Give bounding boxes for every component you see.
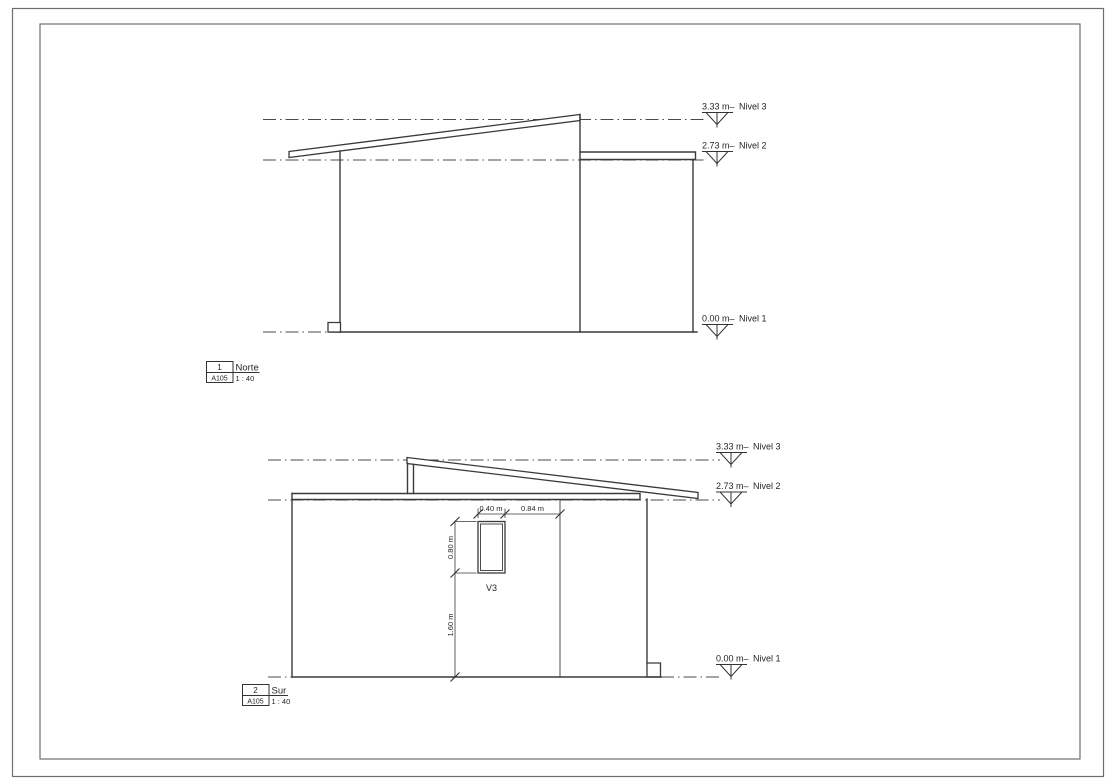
level-elevation-label: 0.00 m– [716, 654, 749, 664]
level-name-label: Nivel 3 [739, 102, 767, 112]
norte-view-title: 1 A105 Norte 1 : 40 [207, 362, 260, 384]
view-scale: 1 : 40 [272, 697, 291, 706]
level-head-icon [720, 492, 742, 507]
norte-level1-marker: 0.00 m– Nivel 1 [702, 314, 767, 340]
sur-view-title: 2 A105 Sur 1 : 40 [243, 685, 291, 707]
norte-flat-roof [580, 152, 696, 160]
window-v3-tag: V3 [486, 583, 497, 593]
sur-level1-marker: 0.00 m– Nivel 1 [716, 654, 781, 680]
sur-clerestory-post [408, 464, 414, 494]
dim-window-height: 0.80 m [446, 536, 455, 559]
sur-sloped-roof-beam [407, 458, 698, 499]
dim-window-sill: 1.60 m [446, 614, 455, 637]
level-head-icon [720, 453, 742, 468]
level-head-icon [720, 665, 742, 680]
norte-footing [328, 323, 341, 333]
level-name-label: Nivel 1 [739, 314, 767, 324]
level-name-label: Nivel 2 [739, 141, 767, 151]
view-number: 1 [217, 363, 222, 372]
view-sheet-ref: A105 [247, 699, 263, 706]
sur-footing [647, 663, 661, 677]
dimension-lines [455, 509, 560, 678]
view-name: Norte [236, 363, 259, 374]
level-name-label: Nivel 3 [753, 442, 781, 452]
norte-sloped-roof-beam [289, 115, 580, 158]
level-elevation-label: 0.00 m– [702, 314, 735, 324]
sur-level3-marker: 3.33 m– Nivel 3 [716, 442, 781, 468]
level-head-icon [706, 152, 728, 167]
view-sheet-ref: A105 [211, 376, 227, 383]
elevation-sheet-drawing: 3.33 m– Nivel 3 2.73 m– Nivel 2 0.00 m– … [0, 0, 1112, 784]
level-head-icon [706, 113, 728, 128]
view-sur: V3 0.40 m 0.84 m 0.80 m 1.60 m 3.33 m– N… [243, 442, 781, 707]
sur-level2-marker: 2.73 m– Nivel 2 [716, 481, 781, 507]
view-number: 2 [253, 686, 258, 695]
norte-level2-marker: 2.73 m– Nivel 2 [702, 141, 767, 167]
dimension-tick-icons [451, 510, 565, 682]
level-name-label: Nivel 2 [753, 481, 781, 491]
view-name: Sur [272, 686, 287, 697]
level-elevation-label: 2.73 m– [702, 141, 735, 151]
view-norte: 3.33 m– Nivel 3 2.73 m– Nivel 2 0.00 m– … [207, 102, 767, 384]
level-elevation-label: 3.33 m– [716, 442, 749, 452]
level-head-icon [706, 325, 728, 340]
norte-level3-marker: 3.33 m– Nivel 3 [702, 102, 767, 128]
window-v3-frame [478, 522, 505, 574]
dim-window-width: 0.40 m [480, 504, 503, 513]
level-name-label: Nivel 1 [753, 654, 781, 664]
sur-flat-roof [292, 494, 640, 500]
sheet-page: { "colors": { "line": "#3a3a3a", "backgr… [0, 0, 1112, 784]
dim-window-offset: 0.84 m [521, 504, 544, 513]
view-scale: 1 : 40 [236, 374, 255, 383]
level-elevation-label: 3.33 m– [702, 102, 735, 112]
level-elevation-label: 2.73 m– [716, 481, 749, 491]
